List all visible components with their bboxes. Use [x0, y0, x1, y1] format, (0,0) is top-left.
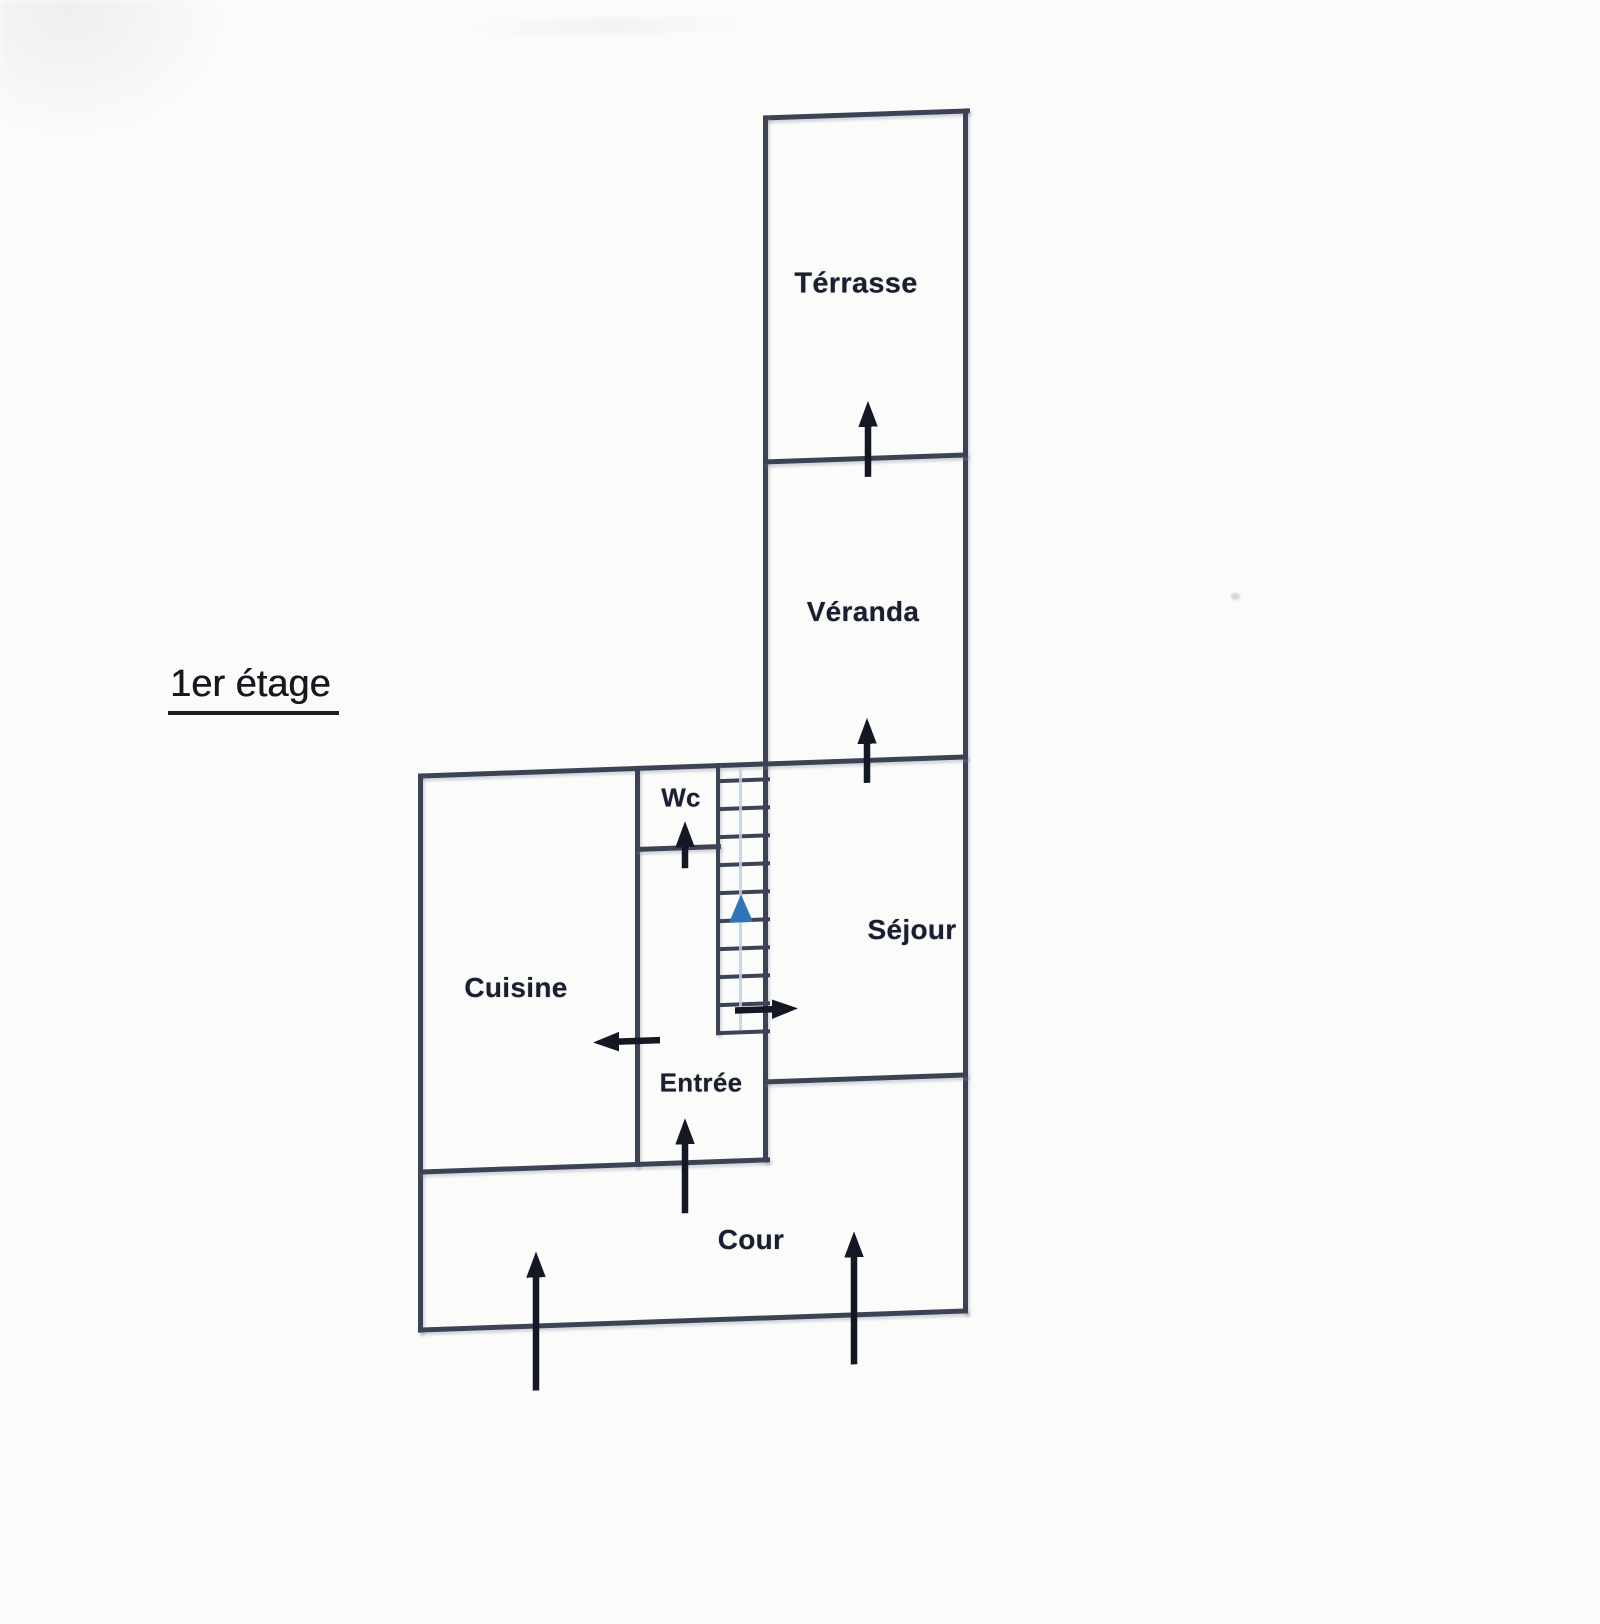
room-label-wc: Wc	[661, 783, 701, 814]
cuisine-entry-arrow-icon	[606, 1040, 660, 1042]
scanned-floor-plan: 1er étage	[0, 0, 1600, 1600]
entry-arrows-layer	[0, 0, 1600, 1624]
plan-geometry	[0, 0, 1600, 1624]
room-label-cour: Cour	[718, 1224, 785, 1256]
room-label-sejour: Séjour	[868, 914, 957, 946]
sejour-entry-arrow-icon	[735, 1009, 785, 1011]
room-label-entree: Entrée	[660, 1068, 743, 1099]
room-label-terrasse: Térrasse	[794, 268, 917, 301]
room-label-veranda: Véranda	[807, 596, 920, 628]
room-label-cuisine: Cuisine	[464, 972, 567, 1004]
